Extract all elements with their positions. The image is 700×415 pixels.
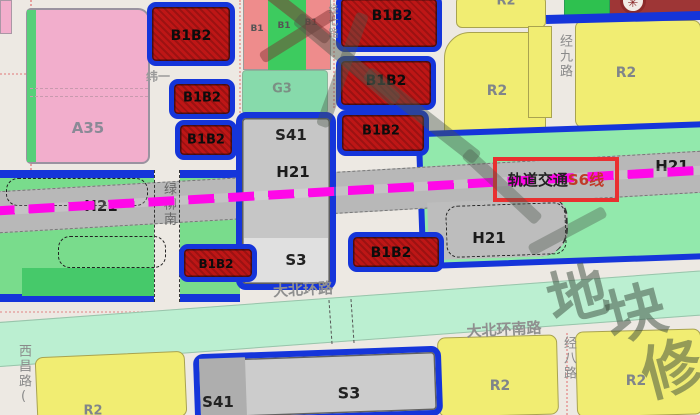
parcel-r2-bottom-left [35,351,188,415]
road-label-weiyi: 纬一 [146,68,170,85]
s6-line-label-prefix: 轨道交通 [508,171,568,189]
sub-parcel-outline [445,202,567,258]
zone-label-r2: R2 [616,65,637,81]
zone-label-s3: S3 [285,251,306,269]
parcel-r2-bottom-mid [437,334,559,415]
zone-label-r2: R2 [490,378,511,394]
zone-label-b1b2: B1B2 [199,257,234,271]
zone-label-r2: R2 [487,83,508,99]
zone-label-b1b2: B1B2 [371,245,412,261]
zone-label-b1b2: B1B2 [183,91,221,106]
zone-label-a35: A35 [72,119,104,137]
planning-map: A35 B1 B1 B1 G3 R2 R2 R2 ✳ B1B2 B1B2 B1B… [0,0,700,415]
parcel-pink-sliver [0,0,12,34]
zone-label-s41: S41 [275,126,307,144]
road-label-jingba: 经八路 [559,336,578,381]
zone-label-b1b2: B1B2 [362,124,400,139]
easement-line [30,88,148,89]
road-lvliu-dashed-edge [179,170,180,302]
zone-label-r2: R2 [496,0,515,9]
utility-icon-glyph: ✳ [628,0,639,11]
zone-label-b1: B1 [277,21,290,31]
sub-parcel-outline [58,236,166,268]
road-label-dabeihuan: 大北环路 [272,277,333,301]
zone-label-b1b2: B1B2 [187,133,225,148]
zone-label-h21: H21 [472,229,505,247]
parcel-r2-strip [528,26,552,118]
parcel-a35 [26,8,150,164]
zone-label-b1b2: B1B2 [372,8,413,24]
zone-label-g3: G3 [272,82,292,97]
zone-label-h21: H21 [276,163,309,181]
zone-label-b1: B1 [250,24,263,34]
easement-line [30,96,148,97]
zone-label-b1b2: B1B2 [171,28,212,44]
zone-label-s3: S3 [338,384,361,403]
zone-label-s41: S41 [202,393,234,411]
road-label-jingjiu: 经九路 [555,34,574,79]
parcel-green-dark-bl [22,268,162,296]
road-label-xichang: 西昌路( [14,344,33,406]
s6-line-label-line: S6线 [568,171,604,189]
s6-line-label: 轨道交通S6线 [508,169,604,190]
parcel-a35-green-strip [27,10,36,162]
parcel-r2-right [575,20,700,128]
road-label-dabeihuannan: 大北环南路 [466,317,542,342]
zone-label-r2: R2 [83,404,102,415]
